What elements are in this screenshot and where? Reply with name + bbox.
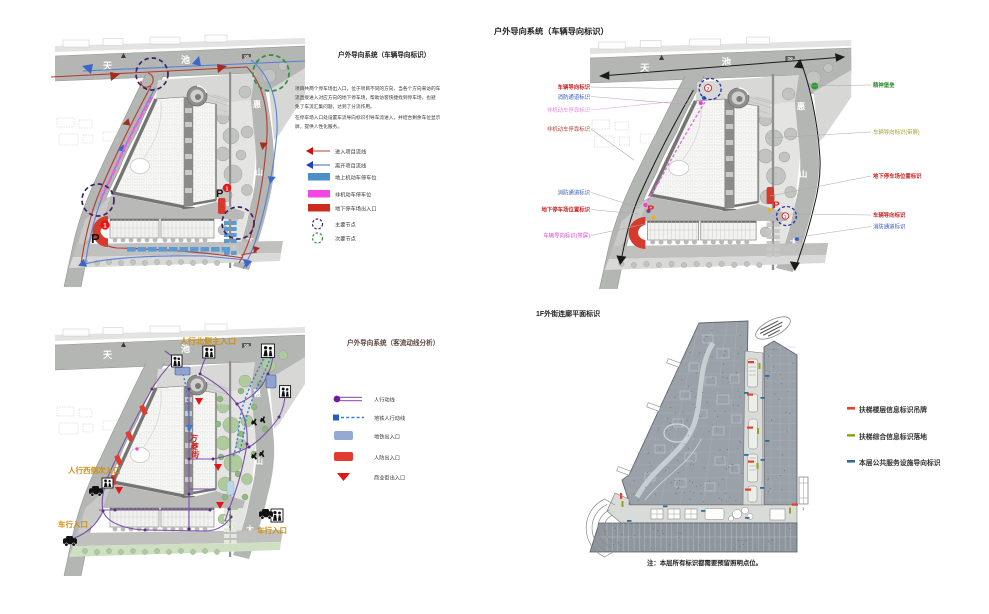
svg-text:地上机动车停车位: 地上机动车停车位 [335, 174, 377, 182]
svg-text:1: 1 [103, 222, 107, 229]
svg-text:车行入口: 车行入口 [58, 519, 88, 529]
svg-text:户外导向系统（车辆导向标识）: 户外导向系统（车辆导向标识） [493, 26, 609, 36]
svg-text:车辆导向标识(带屏): 车辆导向标识(带屏) [543, 232, 590, 240]
svg-text:人行北侧主入口: 人行北侧主入口 [180, 336, 236, 346]
svg-text:P: P [773, 200, 780, 211]
svg-text:7: 7 [784, 214, 787, 219]
svg-text:7: 7 [707, 86, 710, 92]
svg-text:本层公共服务设施导向标识: 本层公共服务设施导向标识 [859, 458, 941, 467]
svg-text:扶梯综合信息标识落地: 扶梯综合信息标识落地 [859, 432, 927, 441]
svg-text:非机动车停车位: 非机动车停车位 [335, 191, 371, 199]
svg-text:P: P [91, 231, 100, 246]
svg-text:主要节点: 主要节点 [335, 221, 356, 229]
svg-text:消防通道标识: 消防通道标识 [873, 223, 906, 231]
svg-text:车辆导向标识(带屏): 车辆导向标识(带屏) [873, 128, 920, 136]
svg-text:免了车流汇集问题，达到了分流作用。: 免了车流汇集问题，达到了分流作用。 [295, 103, 375, 110]
svg-text:商业街出入口: 商业街出入口 [374, 474, 405, 482]
svg-text:地铁出入口: 地铁出入口 [374, 433, 400, 441]
svg-text:1F外街连廊平面标识: 1F外街连廊平面标识 [536, 309, 600, 318]
svg-text:扶梯楼层信息标识吊牌: 扶梯楼层信息标识吊牌 [859, 405, 927, 414]
svg-text:地下停车场位置标识: 地下停车场位置标识 [541, 206, 590, 214]
svg-text:户外导向系统（车辆导向标识）: 户外导向系统（车辆导向标识） [338, 50, 430, 59]
svg-text:进入项目流线: 进入项目流线 [335, 148, 366, 156]
svg-text:车辆导向标识: 车辆导向标识 [873, 211, 906, 219]
svg-text:地下停车场位置标识: 地下停车场位置标识 [873, 172, 922, 180]
svg-text:车辆导向标识: 车辆导向标识 [558, 83, 591, 91]
svg-text:在停车场入口处设置车流导向标识引导车流进入，并结合剩余车位显: 在停车场入口处设置车流导向标识引导车流进入，并结合剩余车位显示 [295, 114, 441, 121]
svg-text:P: P [647, 204, 654, 215]
svg-text:人防出入口: 人防出入口 [374, 454, 400, 462]
svg-text:1: 1 [802, 506, 805, 511]
svg-text:人行动线: 人行动线 [374, 396, 395, 404]
svg-text:消防通道标识: 消防通道标识 [558, 93, 591, 101]
svg-text:流直接进入对应方向的地下停车场，帮助访客快捷找到停车场，也避: 流直接进入对应方向的地下停车场，帮助访客快捷找到停车场，也避 [295, 94, 436, 101]
svg-text:人行西侧次入口: 人行西侧次入口 [68, 465, 121, 475]
svg-text:项目共两个停车场出入口，位于项目不同的方向，当各个方向来访的: 项目共两个停车场出入口，位于项目不同的方向，当各个方向来访的车 [295, 85, 441, 92]
svg-text:精神堡垒: 精神堡垒 [873, 81, 895, 89]
svg-text:街: 街 [190, 449, 200, 460]
svg-text:注：本层所有标识都需要预留照明点位。: 注：本层所有标识都需要预留照明点位。 [647, 558, 762, 567]
svg-text:地下停车场出入口: 地下停车场出入口 [335, 205, 377, 213]
svg-text:非机动车停靠标识: 非机动车停靠标识 [547, 106, 591, 114]
svg-text:离开项目流线: 离开项目流线 [335, 162, 366, 170]
svg-text:消防通道标识: 消防通道标识 [558, 189, 591, 197]
svg-text:车行入口: 车行入口 [257, 525, 287, 535]
svg-text:非机动车停靠标识: 非机动车停靠标识 [547, 125, 591, 133]
svg-text:P: P [216, 188, 223, 200]
svg-text:户外导向系统（客流动线分析）: 户外导向系统（客流动线分析） [347, 338, 439, 347]
svg-text:次要节点: 次要节点 [335, 235, 356, 243]
svg-text:屏，提供人性化服务。: 屏，提供人性化服务。 [295, 123, 342, 130]
svg-text:地铁人行动线: 地铁人行动线 [374, 414, 405, 422]
